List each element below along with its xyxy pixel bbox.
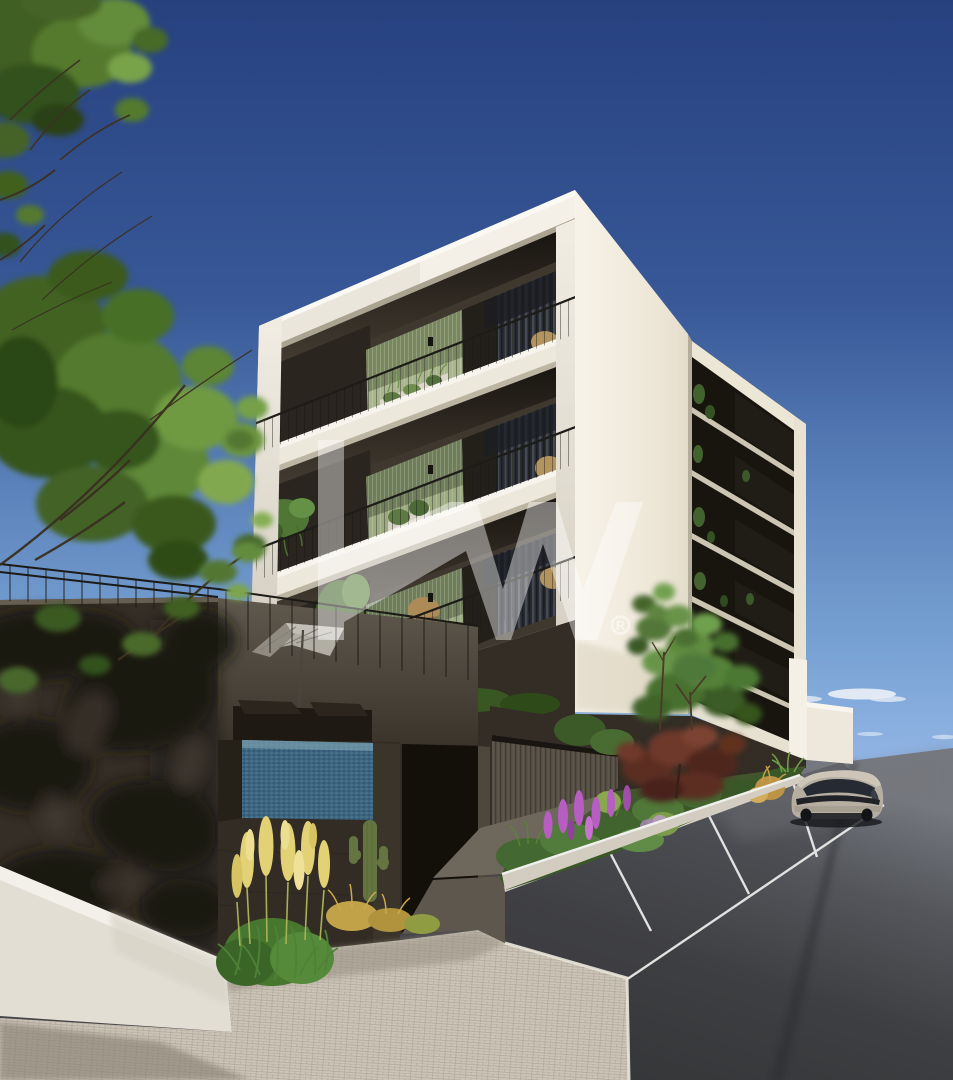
svg-text:R: R	[616, 619, 625, 633]
